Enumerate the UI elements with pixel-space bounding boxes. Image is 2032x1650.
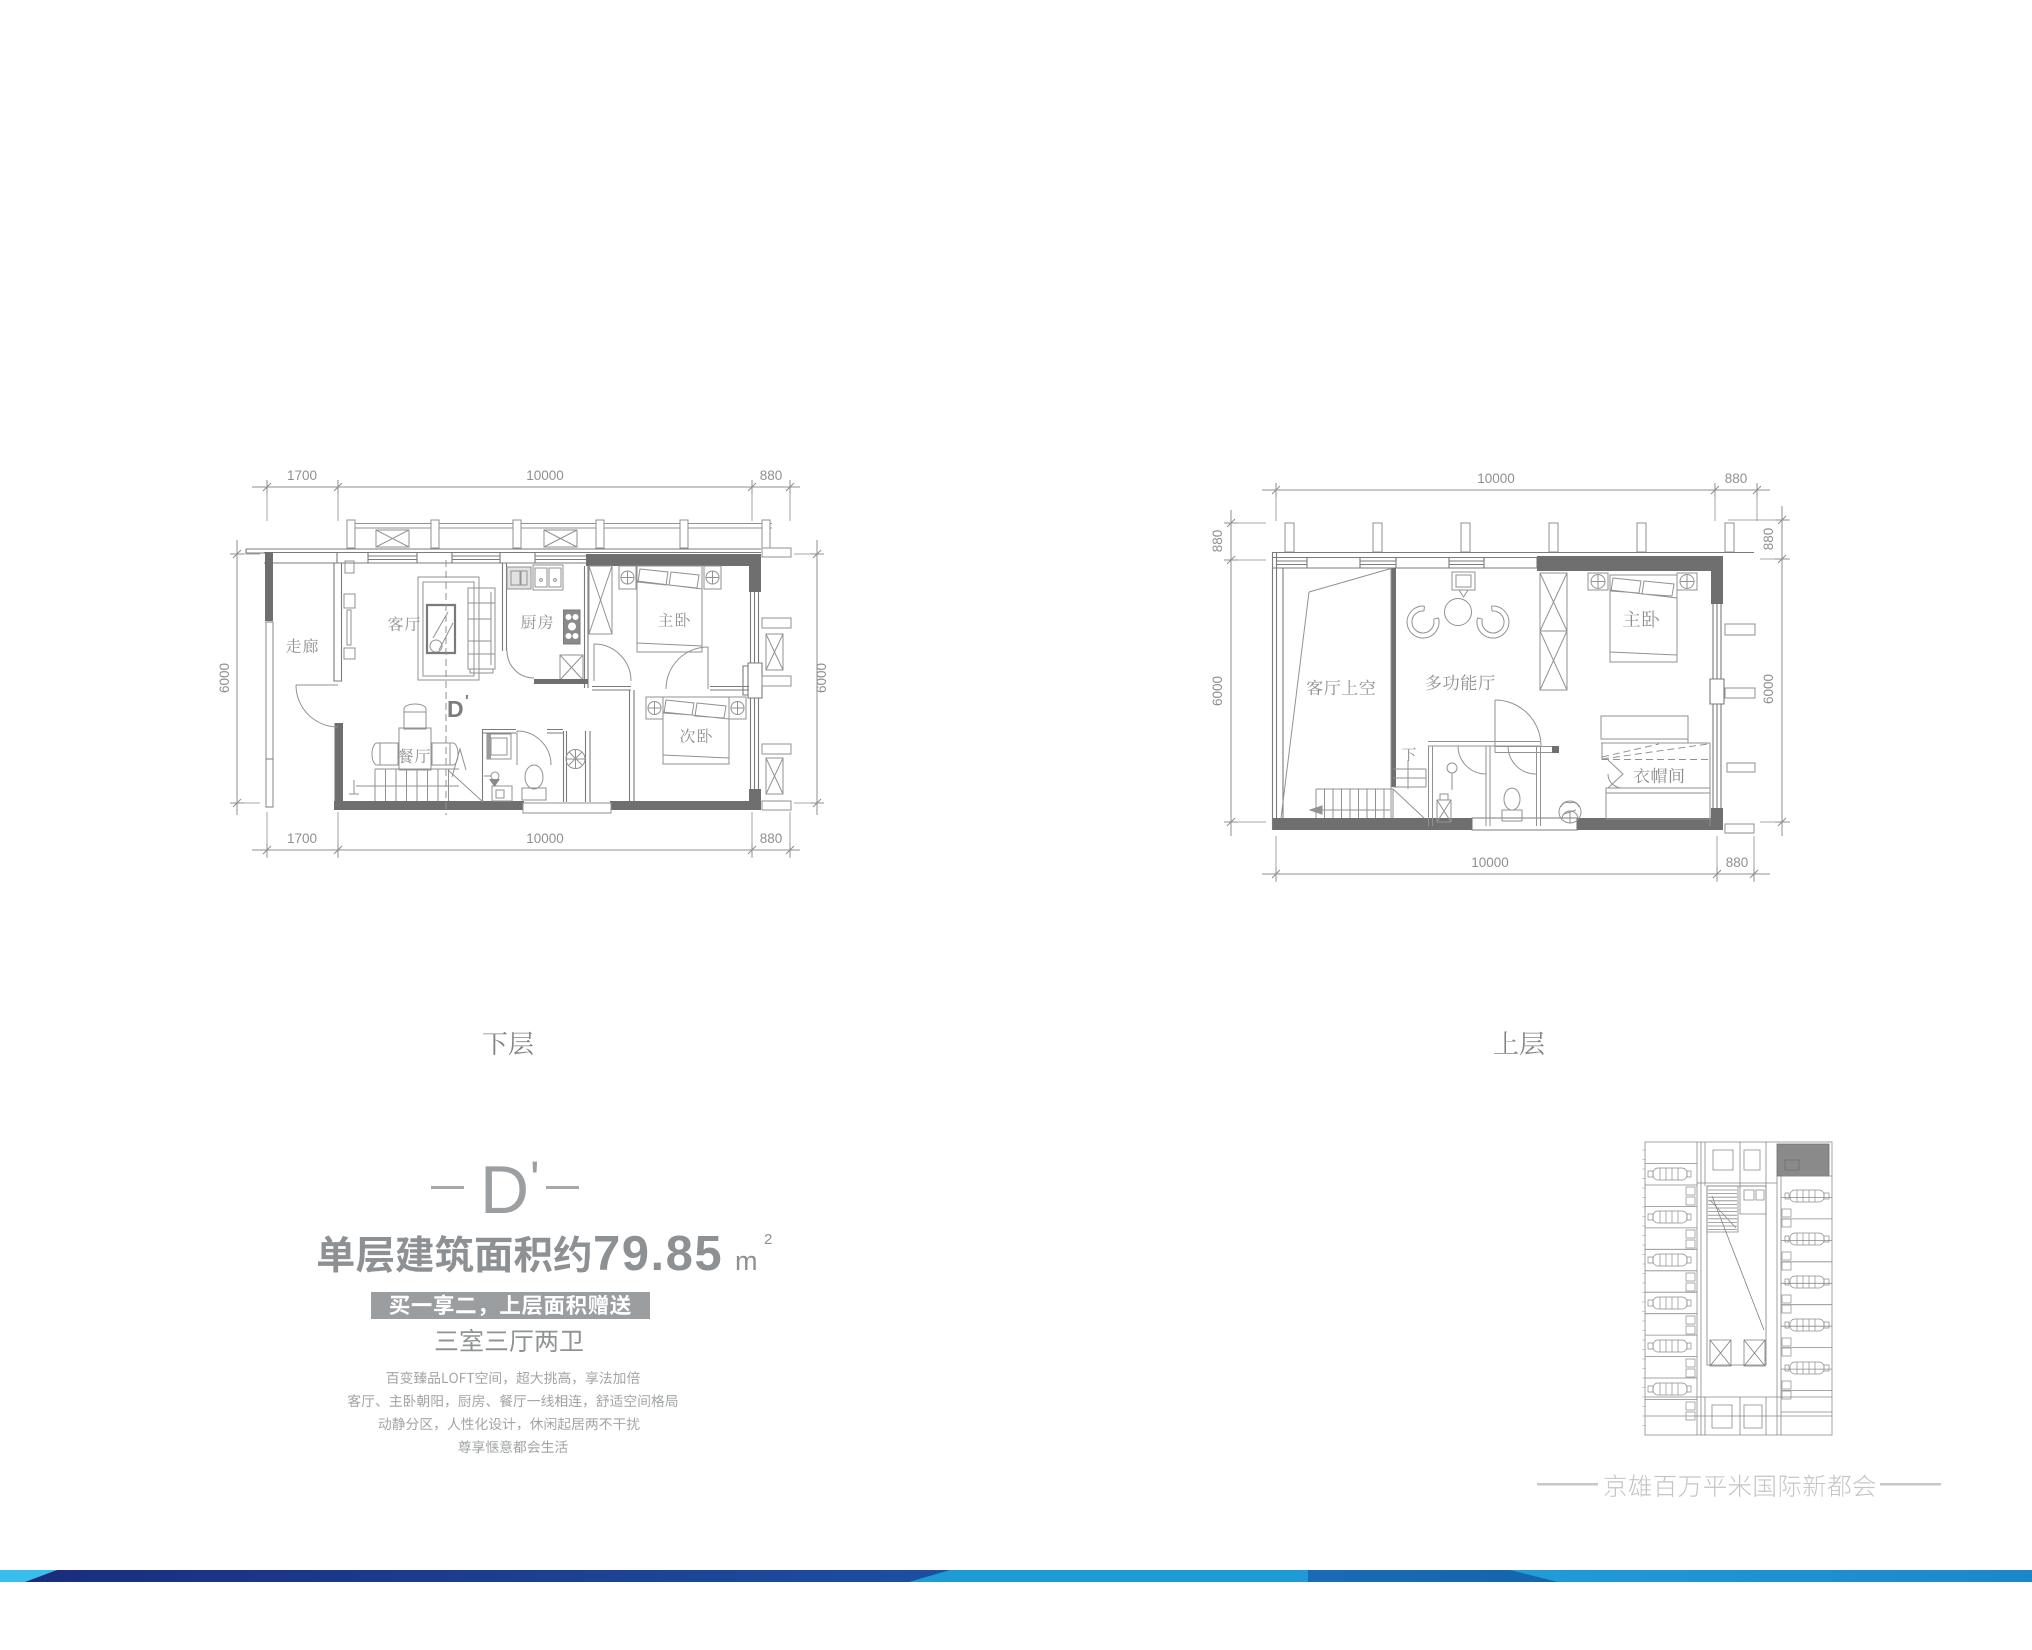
svg-text:10000: 10000 (526, 468, 564, 483)
svg-text:m: m (735, 1246, 758, 1276)
svg-text:880: 880 (760, 831, 783, 846)
svg-text:10000: 10000 (1471, 855, 1509, 870)
svg-text:D: D (480, 1152, 529, 1228)
svg-text:6000: 6000 (1761, 674, 1776, 704)
svg-text:10000: 10000 (526, 831, 564, 846)
svg-text:79.85: 79.85 (593, 1227, 723, 1281)
svg-text:': ' (530, 1151, 540, 1207)
svg-text:880: 880 (1210, 530, 1225, 553)
svg-text:880: 880 (1726, 855, 1749, 870)
svg-text:6000: 6000 (217, 663, 232, 693)
svg-text:10000: 10000 (1477, 471, 1515, 486)
svg-text:6000: 6000 (814, 663, 829, 693)
svg-text:1700: 1700 (287, 468, 317, 483)
svg-text:2: 2 (764, 1231, 772, 1248)
svg-text:880: 880 (760, 468, 783, 483)
svg-text:880: 880 (1725, 471, 1748, 486)
svg-text:': ' (465, 693, 469, 710)
svg-text:880: 880 (1761, 528, 1776, 551)
svg-text:1700: 1700 (287, 831, 317, 846)
svg-text:6000: 6000 (1210, 676, 1225, 706)
svg-text:D: D (447, 696, 464, 722)
